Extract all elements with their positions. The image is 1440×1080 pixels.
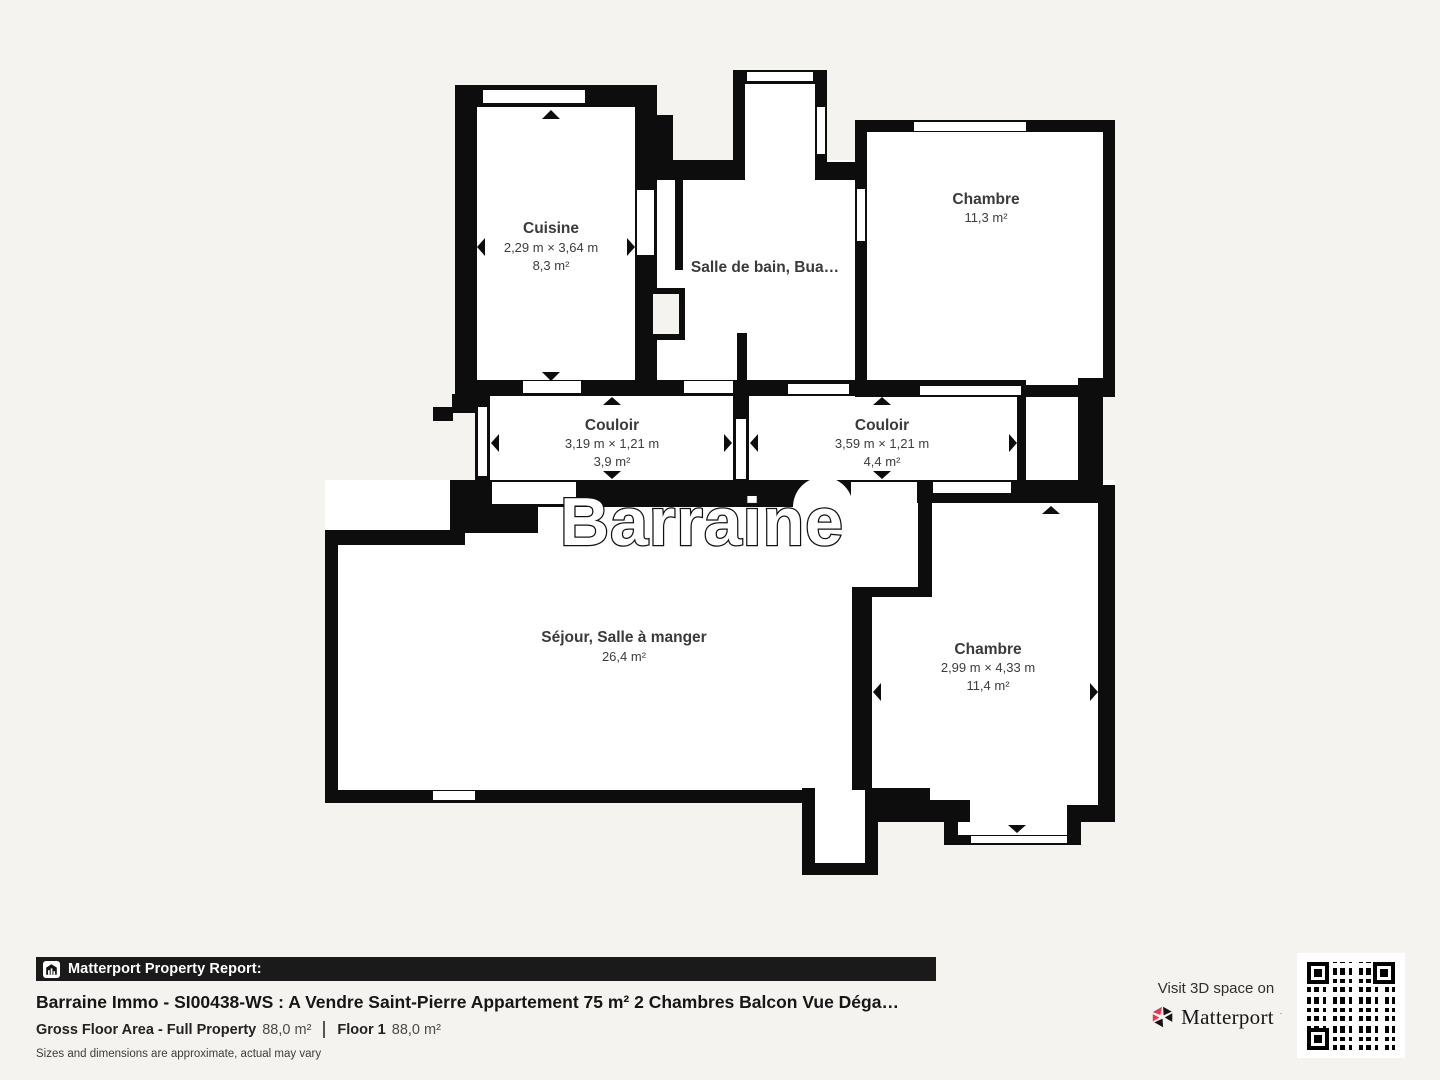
wall xyxy=(737,333,747,385)
wall xyxy=(1017,380,1026,490)
wall xyxy=(455,85,477,397)
door-opening xyxy=(736,419,746,479)
room-label-salle-de-bain: Salle de bain, Bua… xyxy=(691,259,839,276)
qr-code-pattern xyxy=(1307,962,1395,1050)
door-opening xyxy=(788,384,849,394)
wall xyxy=(1098,487,1115,822)
wall xyxy=(733,70,745,180)
room-name: Chambre xyxy=(954,641,1022,658)
room-name: Chambre xyxy=(952,191,1020,208)
room-dimensions: 2,99 m × 4,33 m xyxy=(941,660,1035,675)
wall xyxy=(865,587,925,597)
room-name: Couloir xyxy=(855,417,909,434)
wall xyxy=(865,788,878,875)
door-opening xyxy=(684,381,733,393)
room-area: 4,4 m² xyxy=(864,454,902,469)
trademark-mark: ˙ xyxy=(1280,1013,1283,1022)
wall xyxy=(433,407,453,421)
room-dimensions: 3,59 m × 1,21 m xyxy=(835,436,929,451)
room-dimensions: 2,29 m × 3,64 m xyxy=(504,240,598,255)
floor-label: Floor 1 xyxy=(337,1022,385,1038)
door-opening xyxy=(920,386,1021,395)
shaft-void xyxy=(653,294,679,334)
room-floor xyxy=(855,120,1115,397)
visit-3d-label: Visit 3D space on xyxy=(1130,980,1302,997)
room-name: Séjour, Salle à manger xyxy=(541,629,706,646)
wall xyxy=(675,180,683,270)
floor-area-line: Gross Floor Area - Full Property 88,0 m²… xyxy=(36,1021,441,1038)
wall xyxy=(325,530,465,545)
matterport-logo-text: Matterport xyxy=(1181,1005,1274,1030)
wall xyxy=(652,160,733,180)
window-opening xyxy=(483,90,585,103)
window-opening xyxy=(914,122,1026,131)
room-name: Cuisine xyxy=(523,220,579,237)
door-opening xyxy=(851,482,917,506)
room-area: 3,9 m² xyxy=(594,454,632,469)
wall xyxy=(325,790,878,803)
gross-floor-area-value: 88,0 m² xyxy=(262,1022,311,1038)
window-opening xyxy=(433,791,475,800)
qr-code xyxy=(1297,953,1405,1058)
window-opening xyxy=(747,72,813,81)
floor-plan: Barraine Cuisine 2,29 m × 3,64 m 8,3 m² … xyxy=(0,0,1440,1080)
wall xyxy=(802,788,815,875)
room-dimensions: 3,19 m × 1,21 m xyxy=(565,436,659,451)
door-opening xyxy=(523,381,581,393)
door-opening xyxy=(637,190,654,255)
door-opening xyxy=(478,407,487,476)
wall xyxy=(918,500,932,597)
property-report-page: Barraine Cuisine 2,29 m × 3,64 m 8,3 m² … xyxy=(0,0,1440,1080)
report-banner: Matterport Property Report: xyxy=(36,957,936,981)
wall xyxy=(802,863,878,875)
wall xyxy=(855,120,867,397)
wall xyxy=(452,394,475,413)
room-area: 8,3 m² xyxy=(533,258,571,273)
room-floor xyxy=(635,160,867,397)
door-opening xyxy=(857,189,865,241)
qr-finder-top-right xyxy=(1373,962,1395,984)
disclaimer-text: Sizes and dimensions are approximate, ac… xyxy=(36,1048,321,1060)
visit-3d-block: Visit 3D space on Matterport ˙ xyxy=(1130,980,1302,1030)
property-report-icon xyxy=(43,961,60,978)
room-name: Salle de bain, Bua… xyxy=(691,259,839,276)
gross-floor-area-label: Gross Floor Area - Full Property xyxy=(36,1022,256,1038)
room-area: 11,3 m² xyxy=(964,210,1008,225)
door-opening xyxy=(933,482,1011,493)
window-opening xyxy=(971,836,1067,843)
wall xyxy=(325,530,338,803)
wall xyxy=(852,587,872,790)
window-opening xyxy=(817,107,825,154)
agency-watermark: Barraine xyxy=(560,484,844,560)
wall xyxy=(1067,805,1115,822)
door-opening xyxy=(815,790,865,803)
room-area: 11,4 m² xyxy=(966,678,1010,693)
floor-area-value: 88,0 m² xyxy=(392,1022,441,1038)
listing-title: Barraine Immo - SI00438-WS : A Vendre Sa… xyxy=(36,992,946,1013)
divider xyxy=(323,1021,325,1038)
report-banner-label: Matterport Property Report: xyxy=(68,961,262,977)
wall xyxy=(657,115,673,162)
qr-finder-bottom-left xyxy=(1307,1028,1329,1050)
wall xyxy=(1103,120,1115,397)
qr-finder-top-left xyxy=(1307,962,1329,984)
room-name: Couloir xyxy=(585,417,639,434)
room-area: 26,4 m² xyxy=(602,649,647,664)
matterport-logo-icon xyxy=(1149,1004,1175,1030)
matterport-logo: Matterport ˙ xyxy=(1130,1004,1302,1030)
